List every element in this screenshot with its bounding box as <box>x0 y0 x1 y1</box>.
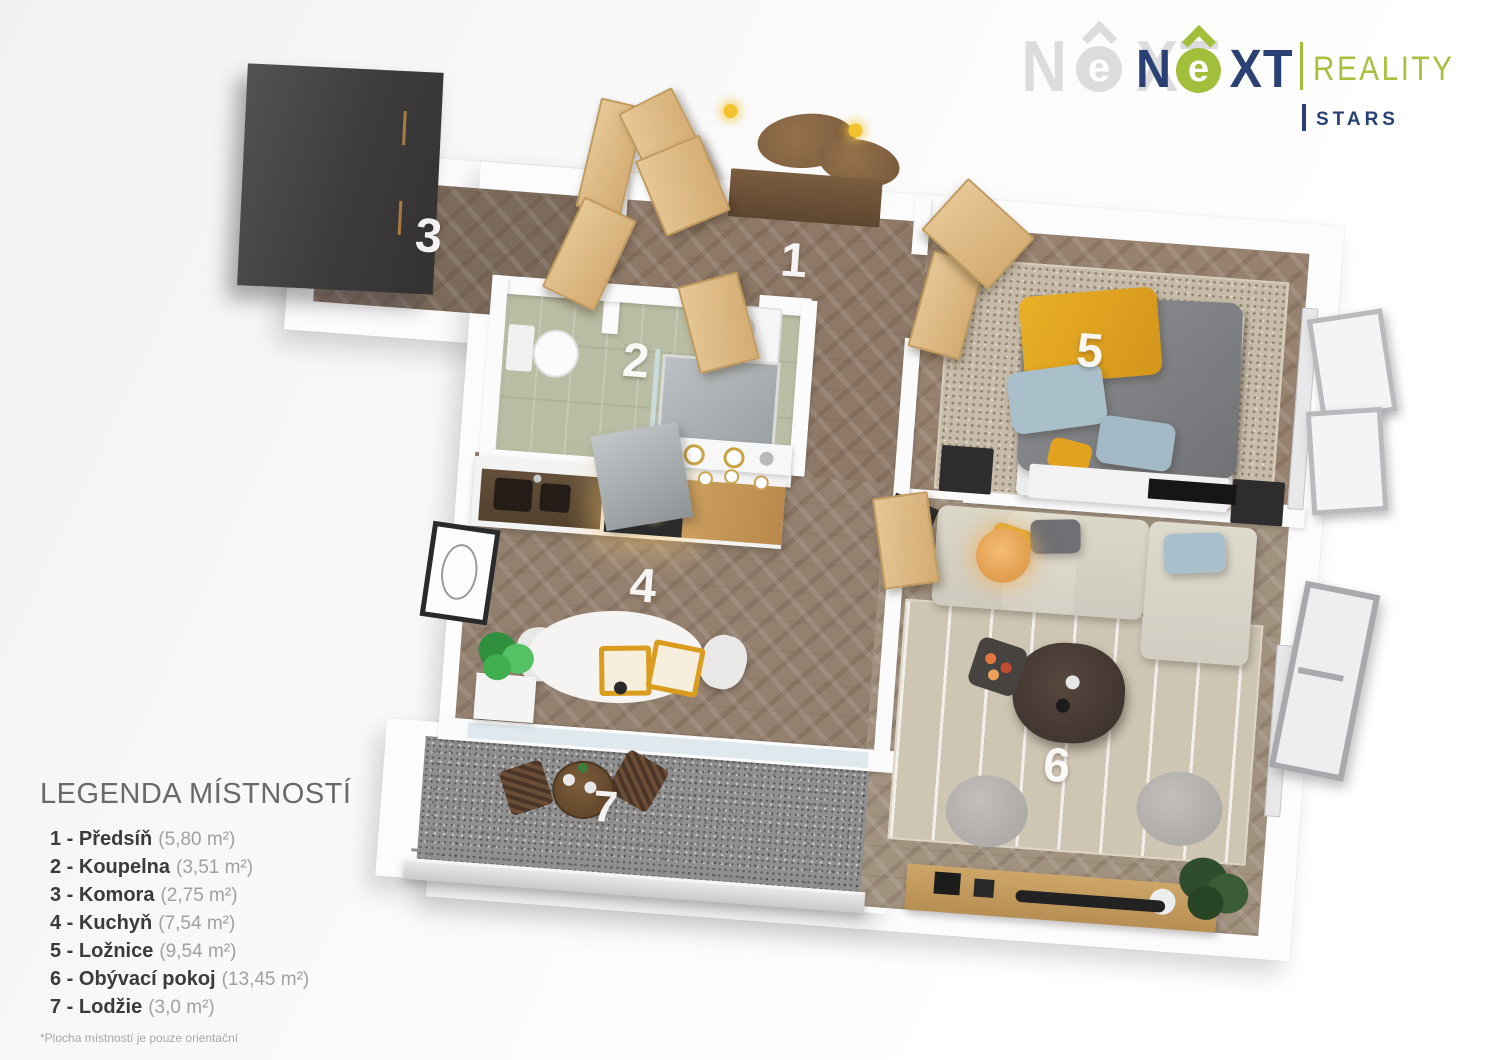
apartment-floor-plan: 1 2 3 4 5 6 7 <box>211 8 1427 1012</box>
room-number-2: 2 <box>620 333 651 390</box>
legend-item: 2 - Koupelna(3,51 m²) <box>50 853 380 881</box>
brand-reality-label: REALITY <box>1313 50 1455 89</box>
plant-stand <box>473 673 536 723</box>
kitchen-sink-basin <box>539 483 571 513</box>
kitchen-sink-basin <box>493 477 533 512</box>
wall-lamp <box>723 104 738 119</box>
media-box <box>973 879 994 898</box>
logo-divider <box>1300 42 1303 90</box>
bedroom-window-sash <box>1307 308 1398 422</box>
sofa-pillow-gray <box>1030 519 1080 554</box>
dining-chair-yellow <box>645 639 706 698</box>
legend: LEGENDA MÍSTNOSTÍ 1 - Předsíň(5,80 m²) 2… <box>40 778 380 1045</box>
floor-plan-page: N e XT N e XT REALITY STARS <box>0 0 1500 1060</box>
wall-picture-frame <box>420 521 501 626</box>
room-number-4: 4 <box>628 558 659 615</box>
room-number-3: 3 <box>413 208 444 265</box>
toilet <box>505 324 534 372</box>
wardrobe-handle <box>398 201 403 235</box>
kitchen-wood-counter <box>681 480 785 545</box>
sofa-pillow-blue <box>1163 532 1226 574</box>
bedroom-window-sash <box>1306 407 1389 516</box>
range-hood <box>590 422 693 531</box>
legend-list: 1 - Předsíň(5,80 m²) 2 - Koupelna(3,51 m… <box>40 825 380 1021</box>
legend-item: 7 - Lodžie(3,0 m²) <box>50 993 380 1021</box>
legend-item: 3 - Komora(2,75 m²) <box>50 881 380 909</box>
room-number-7: 7 <box>591 782 619 834</box>
window-mullion <box>1298 667 1344 682</box>
room-number-1: 1 <box>778 232 809 289</box>
nightstand <box>1230 479 1285 527</box>
legend-footnote: *Plocha místností je pouze orientační <box>40 1031 380 1045</box>
legend-item: 1 - Předsíň(5,80 m²) <box>50 825 380 853</box>
legend-item: 6 - Obývací pokoj(13,45 m²) <box>50 965 380 993</box>
room-number-5: 5 <box>1075 323 1106 380</box>
legend-title: LEGENDA MÍSTNOSTÍ <box>40 778 380 811</box>
legend-item: 4 - Kuchyň(7,54 m²) <box>50 909 380 937</box>
media-box <box>933 872 961 896</box>
wardrobe-handle <box>402 111 407 145</box>
wall-lamp <box>848 123 863 138</box>
legend-item: 5 - Ložnice(9,54 m²) <box>50 937 380 965</box>
room-number-6: 6 <box>1041 737 1072 794</box>
nightstand <box>939 445 994 495</box>
picture-art <box>437 542 481 603</box>
